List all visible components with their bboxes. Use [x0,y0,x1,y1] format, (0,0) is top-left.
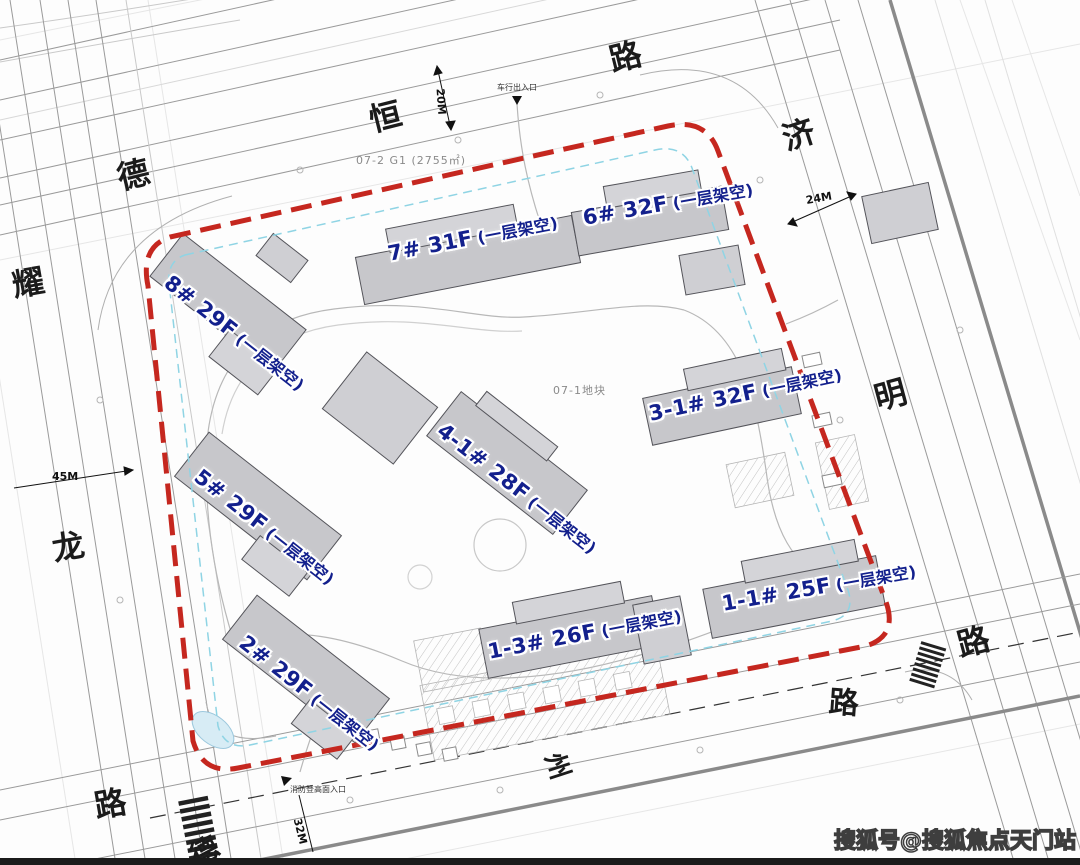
bottom-road-char-2: 路 [828,677,861,723]
vehicle-entrance-label: 车行出入口 [497,82,537,93]
adjacent-parcel-label: 07-2 G1 (2755㎡) [356,152,466,168]
site-plan: 德 恒 路 济 明 路 耀 龙 路 德 州 路 20M 24M 45M 32M … [0,0,1080,865]
building-4-1-footprint [427,379,597,534]
dimension-20m: 20M [434,88,449,115]
watermark: 搜狐号@搜狐焦点天门站 [834,823,1076,855]
crosswalk-bottom-right [909,641,946,688]
site-parcel-label: 07-1地块 [553,382,606,398]
fire-access-label: 消防登高面入口 [290,784,346,795]
vehicle-entrance-arrow-icon [512,96,522,105]
dimension-45m: 45M [52,470,78,483]
site-plan-linework [0,0,1080,865]
bottom-border-bar [0,858,1080,865]
